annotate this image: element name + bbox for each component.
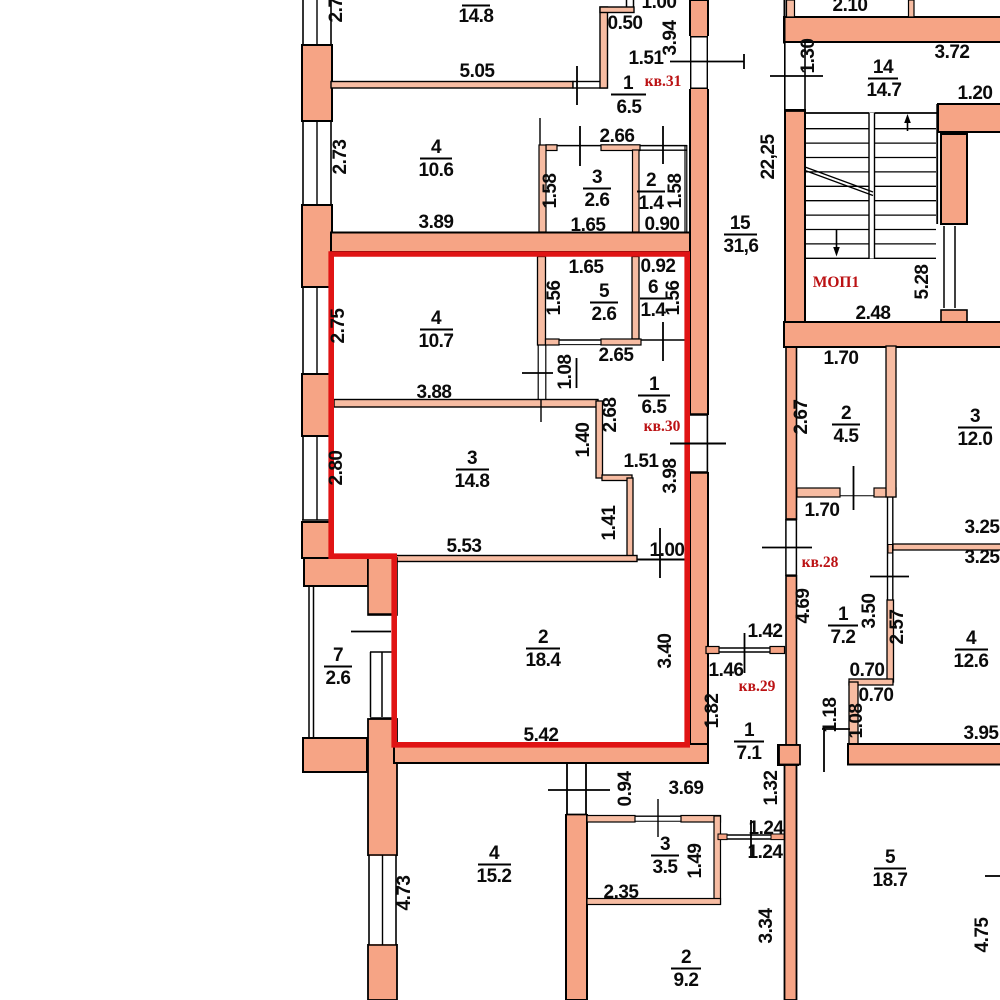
svg-text:2.35: 2.35: [604, 882, 640, 903]
svg-text:2.66: 2.66: [600, 126, 635, 147]
svg-text:МОП1: МОП1: [813, 274, 860, 291]
svg-text:1.00: 1.00: [642, 0, 677, 13]
svg-text:0.50: 0.50: [608, 13, 643, 34]
svg-text:4.73: 4.73: [394, 876, 415, 911]
svg-text:1.40: 1.40: [573, 423, 594, 458]
svg-text:31,6: 31,6: [724, 236, 759, 257]
svg-text:3.72: 3.72: [935, 42, 970, 63]
svg-text:кв.29: кв.29: [739, 678, 776, 695]
svg-text:4: 4: [431, 137, 442, 158]
svg-text:1.20: 1.20: [958, 83, 993, 104]
svg-text:3: 3: [467, 448, 477, 469]
svg-text:2.6: 2.6: [326, 668, 351, 689]
svg-text:15: 15: [730, 213, 751, 234]
svg-text:2.48: 2.48: [856, 303, 891, 324]
svg-text:10.6: 10.6: [419, 160, 454, 181]
svg-text:12.6: 12.6: [954, 651, 989, 672]
svg-text:1.56: 1.56: [663, 281, 684, 316]
svg-text:14.7: 14.7: [867, 80, 902, 101]
svg-text:10.7: 10.7: [419, 331, 454, 352]
svg-text:2.7: 2.7: [326, 0, 347, 22]
svg-text:0.94: 0.94: [615, 771, 636, 807]
svg-text:2: 2: [538, 627, 548, 648]
svg-text:7.1: 7.1: [737, 743, 763, 764]
svg-text:1.18: 1.18: [820, 698, 841, 733]
svg-text:0.70: 0.70: [850, 660, 885, 681]
svg-text:2: 2: [646, 170, 656, 191]
svg-text:1.58: 1.58: [665, 174, 686, 209]
svg-text:14: 14: [873, 57, 894, 78]
svg-text:1.51: 1.51: [624, 451, 660, 472]
svg-text:кв.30: кв.30: [644, 418, 681, 435]
svg-text:3.88: 3.88: [417, 382, 452, 403]
svg-text:18.7: 18.7: [873, 870, 908, 891]
svg-text:2.10: 2.10: [833, 0, 868, 16]
svg-text:0.70: 0.70: [859, 685, 894, 706]
svg-text:1.82: 1.82: [702, 694, 723, 729]
svg-text:2.57: 2.57: [887, 610, 908, 645]
svg-text:1.41: 1.41: [599, 505, 620, 541]
svg-text:2.68: 2.68: [600, 398, 621, 433]
svg-text:3: 3: [970, 406, 980, 427]
svg-text:12.0: 12.0: [958, 429, 993, 450]
svg-text:5.28: 5.28: [912, 265, 933, 300]
svg-text:3.5: 3.5: [653, 857, 679, 878]
svg-text:3.89: 3.89: [419, 212, 454, 233]
svg-text:3.98: 3.98: [660, 459, 681, 494]
svg-text:кв.31: кв.31: [645, 73, 682, 90]
svg-text:1: 1: [838, 604, 849, 625]
svg-text:4: 4: [489, 843, 500, 864]
svg-text:1.30: 1.30: [798, 39, 819, 74]
svg-text:1.24: 1.24: [749, 818, 785, 839]
svg-text:3: 3: [660, 834, 670, 855]
svg-text:2.65: 2.65: [599, 345, 635, 366]
svg-text:0.92: 0.92: [641, 256, 676, 277]
svg-text:2: 2: [681, 947, 691, 968]
svg-text:2.6: 2.6: [585, 190, 610, 211]
svg-text:5.42: 5.42: [524, 725, 559, 746]
svg-text:1.65: 1.65: [571, 215, 607, 236]
svg-text:15.2: 15.2: [477, 866, 512, 887]
svg-text:14.8: 14.8: [459, 6, 494, 27]
svg-text:1.08: 1.08: [555, 355, 576, 390]
svg-text:7.2: 7.2: [831, 627, 856, 648]
svg-text:1.24: 1.24: [748, 842, 784, 863]
svg-text:6.5: 6.5: [617, 97, 643, 118]
svg-text:4: 4: [431, 308, 442, 329]
svg-text:1.51: 1.51: [629, 48, 665, 69]
svg-text:2.80: 2.80: [326, 451, 347, 486]
svg-text:4.69: 4.69: [793, 589, 814, 624]
svg-text:3.69: 3.69: [669, 778, 704, 799]
svg-text:1.42: 1.42: [748, 621, 783, 642]
svg-text:1.32: 1.32: [761, 771, 782, 806]
svg-text:3.34: 3.34: [756, 908, 777, 944]
svg-text:4.75: 4.75: [972, 917, 993, 953]
svg-text:3.95: 3.95: [964, 723, 1000, 744]
svg-text:3.50: 3.50: [859, 594, 880, 629]
svg-text:1.4: 1.4: [639, 193, 665, 214]
svg-text:1.08: 1.08: [846, 704, 867, 739]
svg-text:5.05: 5.05: [460, 61, 496, 82]
svg-text:1.70: 1.70: [805, 500, 840, 521]
svg-text:18.4: 18.4: [526, 650, 562, 671]
svg-text:кв.28: кв.28: [802, 554, 839, 571]
svg-text:1.49: 1.49: [685, 844, 706, 879]
svg-text:4: 4: [966, 628, 977, 649]
svg-text:5: 5: [599, 281, 610, 302]
svg-text:9.2: 9.2: [674, 970, 699, 991]
svg-text:1.00: 1.00: [650, 540, 685, 561]
svg-text:6: 6: [648, 277, 658, 298]
svg-text:5.53: 5.53: [447, 536, 482, 557]
svg-text:1.65: 1.65: [569, 257, 605, 278]
svg-text:1: 1: [744, 720, 755, 741]
svg-text:2.73: 2.73: [330, 140, 351, 175]
svg-text:1.58: 1.58: [540, 174, 561, 209]
svg-text:3.40: 3.40: [655, 634, 676, 669]
svg-text:6.5: 6.5: [642, 397, 668, 418]
svg-text:22,25: 22,25: [758, 134, 779, 180]
svg-text:0.90: 0.90: [645, 214, 680, 235]
svg-text:2.75: 2.75: [328, 308, 349, 344]
svg-text:1: 1: [623, 73, 634, 94]
svg-text:1.70: 1.70: [824, 348, 859, 369]
svg-text:7: 7: [333, 645, 343, 666]
svg-text:2: 2: [841, 403, 851, 424]
svg-text:1.56: 1.56: [544, 281, 565, 316]
svg-text:5: 5: [885, 847, 896, 868]
svg-text:3: 3: [592, 167, 602, 188]
svg-text:14.8: 14.8: [455, 471, 490, 492]
svg-text:2.6: 2.6: [592, 304, 617, 325]
svg-text:4.5: 4.5: [834, 426, 860, 447]
svg-text:3.25: 3.25: [965, 547, 1000, 568]
svg-text:2.67: 2.67: [791, 400, 812, 435]
svg-text:3.25: 3.25: [965, 517, 1000, 538]
svg-text:1: 1: [649, 374, 660, 395]
